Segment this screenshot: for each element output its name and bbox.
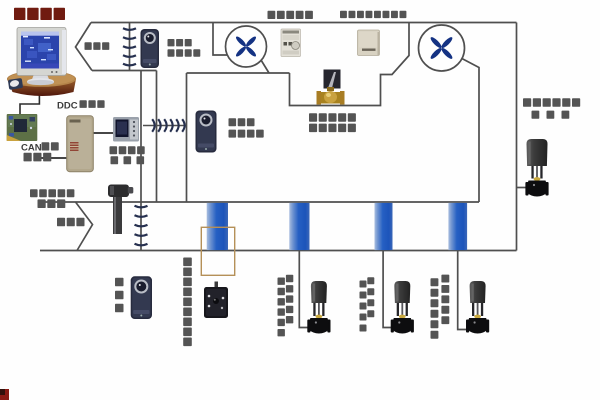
svg-text:DDC: DDC [57,100,78,111]
svg-text:CAN: CAN [21,143,42,154]
